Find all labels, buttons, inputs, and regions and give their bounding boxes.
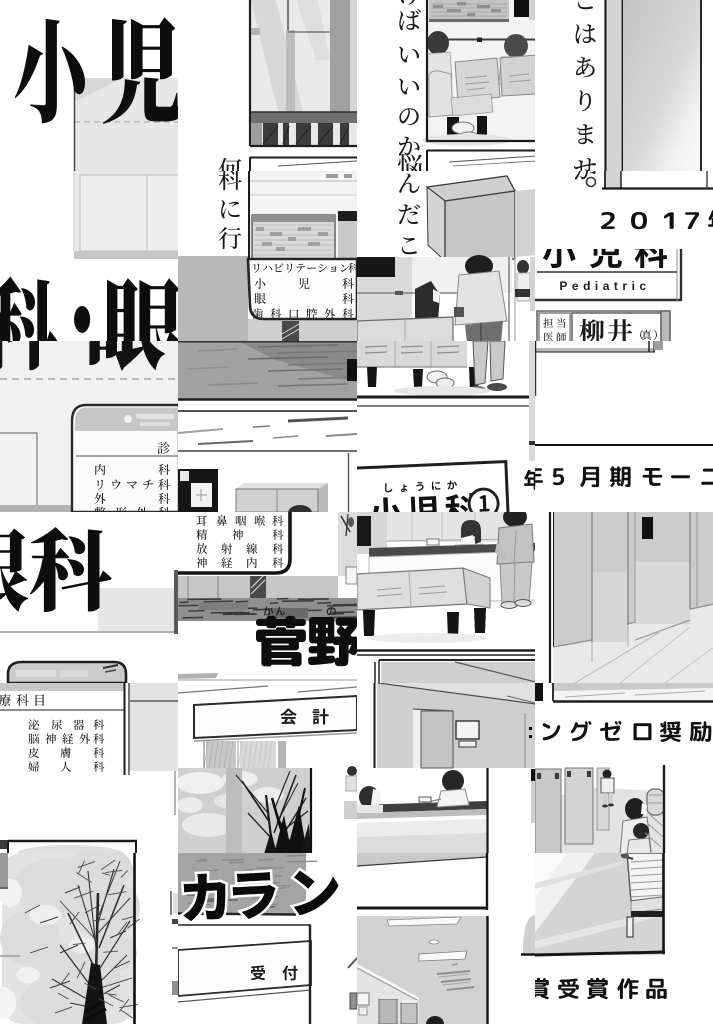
svg-text:Pediatric: Pediatric [559,279,650,293]
